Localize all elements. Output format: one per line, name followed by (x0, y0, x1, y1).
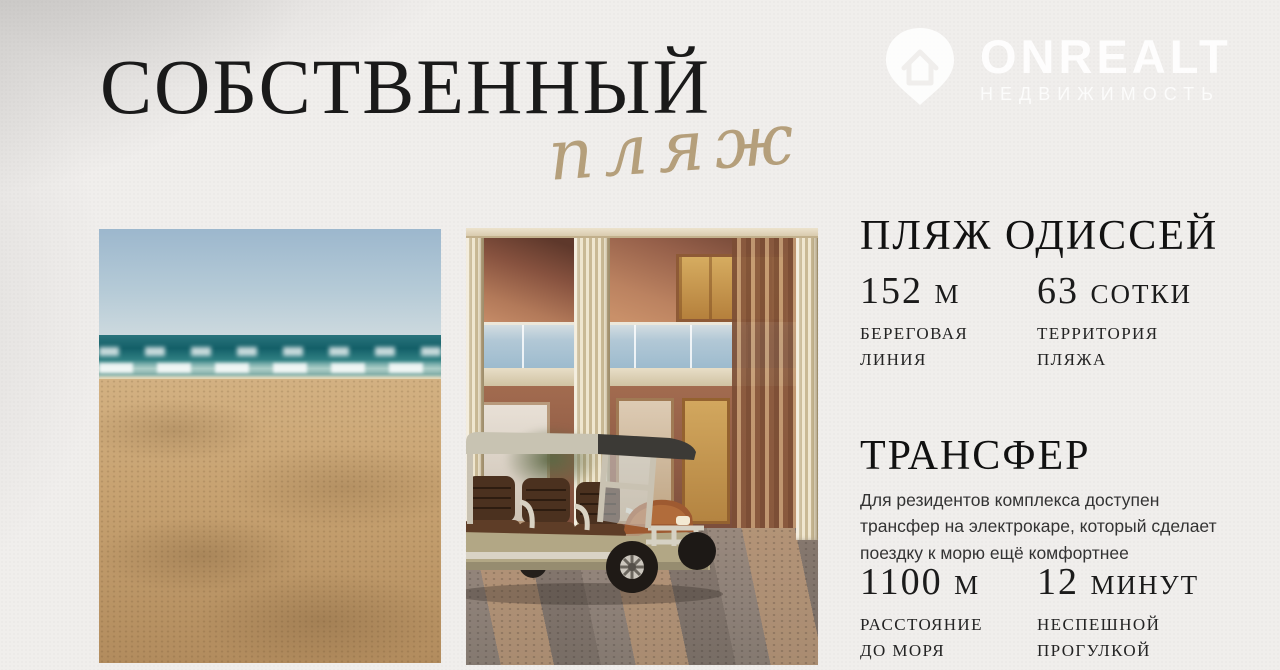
stat-value: 1100 м (860, 563, 1037, 603)
stat-label: ТЕРРИТОРИЯ ПЛЯЖА (1037, 321, 1192, 374)
building-electrocar-photo (466, 228, 818, 665)
stat-value: 12 минут (1037, 563, 1199, 603)
stat-distance: 1100 м РАССТОЯНИЕ ДО МОРЯ (860, 563, 1037, 665)
beach-sky (99, 229, 441, 335)
wood-slat-screen (732, 228, 796, 538)
top-fascia (466, 228, 818, 238)
script-subtitle: пляж (546, 103, 806, 191)
beach-stats: 152 м БЕРЕГОВАЯ ЛИНИЯ 63 сотки ТЕРРИТОРИ… (860, 272, 1192, 374)
golf-cart-illustration (466, 424, 738, 609)
fluted-pillar-right (796, 228, 818, 540)
beach-photo (99, 229, 441, 663)
transfer-stats: 1100 м РАССТОЯНИЕ ДО МОРЯ 12 минут НЕСПЕ… (860, 563, 1199, 665)
section-heading-beach: ПЛЯЖ ОДИССЕЙ (860, 212, 1218, 260)
stat-value: 152 м (860, 272, 1037, 312)
stat-walk-time: 12 минут НЕСПЕШНОЙ ПРОГУЛКОЙ (1037, 563, 1199, 665)
house-pin-icon (874, 20, 966, 117)
stat-label: НЕСПЕШНОЙ ПРОГУЛКОЙ (1037, 612, 1199, 665)
beach-sand (99, 379, 441, 663)
stat-shoreline: 152 м БЕРЕГОВАЯ ЛИНИЯ (860, 272, 1037, 374)
brand-watermark: ONREALT НЕДВИЖИМОСТЬ (874, 20, 1232, 117)
presentation-slide: СОБСТВЕННЫЙ пляж ONREALT НЕДВИЖИМОСТЬ (0, 0, 1280, 670)
stat-value: 63 сотки (1037, 272, 1192, 312)
section-heading-transfer: ТРАНСФЕР (860, 432, 1091, 480)
brand-name: ONREALT (980, 33, 1232, 80)
beach-sea-waves (99, 335, 441, 379)
transfer-description: Для резидентов комплекса доступен трансф… (860, 487, 1242, 566)
brand-subtitle: НЕДВИЖИМОСТЬ (980, 84, 1232, 105)
stat-territory: 63 сотки ТЕРРИТОРИЯ ПЛЯЖА (1037, 272, 1192, 374)
stat-label: РАССТОЯНИЕ ДО МОРЯ (860, 612, 1037, 665)
stat-label: БЕРЕГОВАЯ ЛИНИЯ (860, 321, 1037, 374)
